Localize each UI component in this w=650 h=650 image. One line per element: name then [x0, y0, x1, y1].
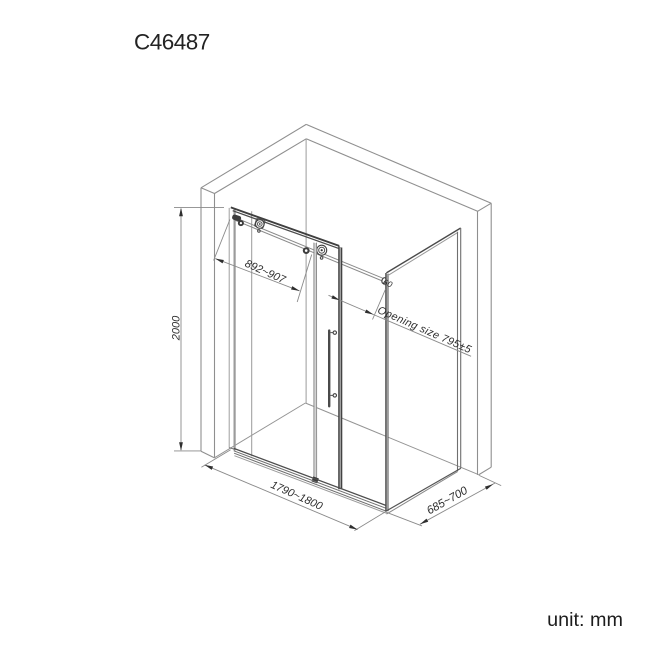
svg-text:C46487: C46487 — [134, 30, 210, 55]
svg-text:2000: 2000 — [170, 315, 182, 341]
svg-text:unit: mm: unit: mm — [547, 609, 623, 631]
